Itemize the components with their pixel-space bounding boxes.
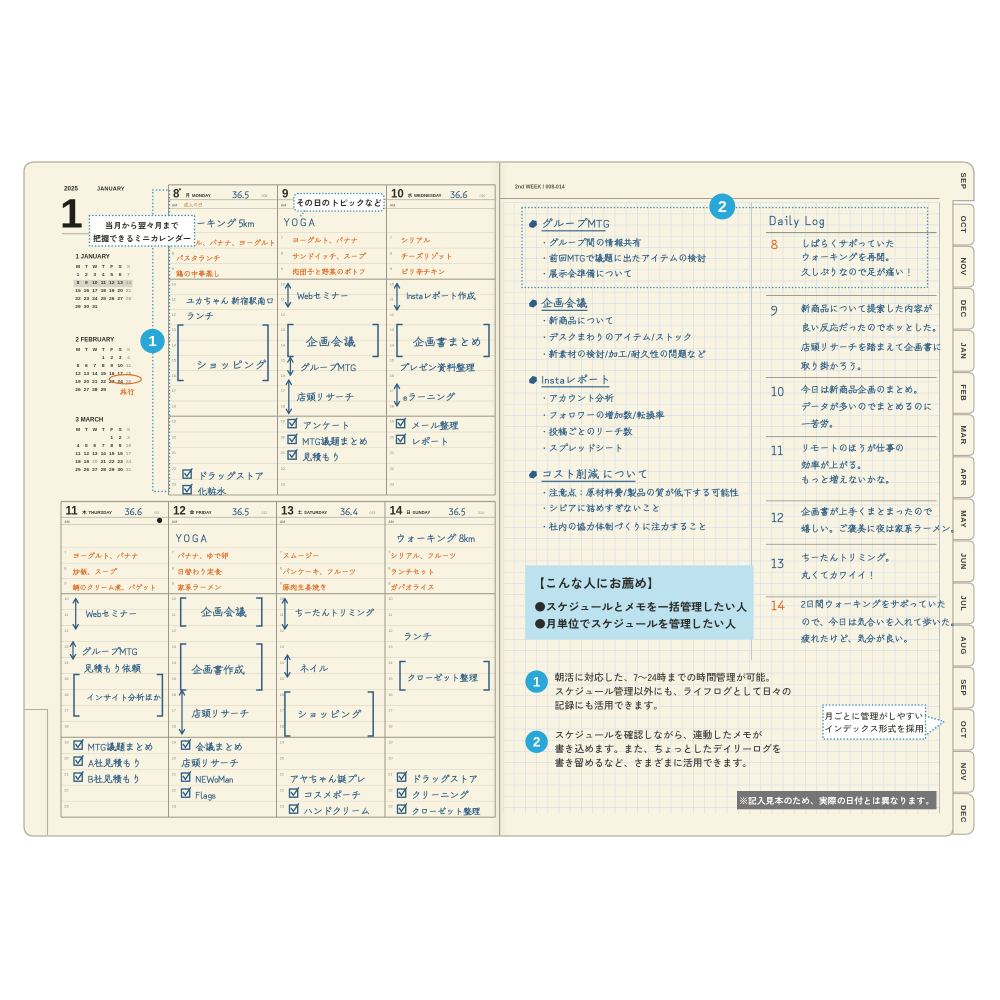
svg-text:23: 23: [84, 296, 90, 302]
svg-text:成人の日: 成人の日: [183, 203, 202, 209]
svg-text:9: 9: [172, 581, 174, 586]
svg-text:3 MARCH: 3 MARCH: [76, 417, 104, 424]
svg-text:W: W: [92, 347, 97, 353]
svg-text:7: 7: [64, 550, 66, 555]
svg-text:YOGA: YOGA: [175, 530, 209, 545]
svg-text:7: 7: [281, 235, 283, 240]
svg-text:T: T: [85, 427, 88, 433]
svg-text:企画書まとめ: 企画書まとめ: [412, 334, 482, 350]
svg-text:21: 21: [390, 450, 394, 455]
svg-text:18: 18: [280, 724, 284, 729]
svg-text:23: 23: [117, 459, 123, 465]
svg-text:29: 29: [109, 467, 115, 473]
svg-text:インサイト分析ほか: インサイト分析ほか: [86, 692, 161, 704]
svg-text:13: 13: [390, 327, 394, 332]
svg-text:014: 014: [478, 511, 484, 515]
svg-text:8: 8: [172, 566, 174, 571]
svg-text:31: 31: [126, 467, 132, 473]
svg-text:1: 1: [102, 355, 105, 361]
svg-text:SEP: SEP: [959, 679, 968, 696]
svg-text:AM: AM: [390, 203, 396, 207]
svg-text:7: 7: [390, 235, 392, 240]
svg-text:AM: AM: [64, 520, 70, 524]
svg-text:12: 12: [390, 312, 394, 317]
svg-text:スケジュール管理以外にも、ライフログとして日々の: スケジュール管理以外にも、ライフログとして日々の: [555, 684, 792, 698]
svg-text:21: 21: [172, 772, 176, 777]
svg-text:把握できるミニカレンダー: 把握できるミニカレンダー: [93, 232, 191, 244]
svg-text:グループMTG: グループMTG: [82, 644, 138, 658]
svg-text:アヤちゃん誕プレ: アヤちゃん誕プレ: [290, 772, 366, 786]
svg-text:4: 4: [127, 355, 130, 361]
svg-text:8: 8: [173, 189, 180, 201]
svg-text:26: 26: [84, 467, 90, 473]
svg-text:17: 17: [64, 708, 68, 713]
svg-text:ランチ: ランチ: [186, 308, 214, 322]
svg-text:27: 27: [84, 387, 90, 393]
svg-text:会議まとめ: 会議まとめ: [196, 740, 244, 754]
svg-text:25: 25: [101, 296, 107, 302]
svg-text:T: T: [85, 264, 88, 270]
svg-text:AM: AM: [172, 203, 178, 207]
svg-text:JUN: JUN: [959, 553, 968, 570]
svg-text:9: 9: [172, 266, 174, 271]
svg-text:丸くてカワイイ！: 丸くてカワイイ！: [801, 567, 876, 581]
svg-text:8: 8: [390, 250, 392, 255]
svg-text:・展示会準備について: ・展示会準備について: [540, 266, 632, 280]
svg-text:旅行: 旅行: [120, 388, 135, 398]
svg-text:Webセミナー: Webセミナー: [297, 289, 349, 302]
svg-text:15: 15: [172, 358, 176, 363]
svg-text:22: 22: [172, 466, 176, 471]
svg-text:T: T: [85, 347, 88, 353]
svg-text:7: 7: [172, 550, 174, 555]
svg-text:17: 17: [390, 388, 394, 393]
svg-text:16: 16: [172, 373, 176, 378]
svg-text:9: 9: [281, 266, 283, 271]
svg-text:3: 3: [127, 435, 130, 441]
svg-text:2 FEBRUARY: 2 FEBRUARY: [76, 337, 115, 344]
svg-text:11: 11: [280, 612, 284, 617]
svg-text:FEB: FEB: [959, 384, 968, 401]
svg-text:14: 14: [92, 371, 98, 377]
svg-text:13: 13: [172, 327, 176, 332]
svg-text:JUL: JUL: [959, 595, 968, 611]
svg-text:1: 1: [148, 333, 156, 350]
svg-text:11: 11: [771, 439, 783, 459]
svg-text:16: 16: [172, 692, 176, 697]
svg-text:企画会議: 企画会議: [541, 295, 588, 311]
svg-text:15: 15: [109, 451, 115, 457]
svg-text:MAY: MAY: [959, 510, 968, 528]
svg-text:AM: AM: [172, 520, 178, 524]
svg-text:ドラッグストア: ドラッグストア: [412, 772, 479, 786]
svg-text:クローゼット整理: クローゼット整理: [407, 671, 479, 684]
svg-text:17: 17: [92, 288, 98, 294]
svg-text:16: 16: [390, 373, 394, 378]
svg-text:15: 15: [64, 676, 68, 681]
svg-text:36.6: 36.6: [124, 504, 142, 518]
svg-text:DEC: DEC: [959, 300, 968, 318]
svg-text:鶏の中華蒸し: 鶏の中華蒸し: [176, 269, 220, 280]
svg-text:インデックス形式を採用: インデックス形式を採用: [824, 722, 923, 735]
svg-text:21: 21: [172, 450, 176, 455]
svg-text:JANUARY: JANUARY: [97, 187, 125, 193]
svg-text:WEDNESDAY: WEDNESDAY: [414, 193, 442, 198]
svg-text:・新商品について: ・新商品について: [540, 313, 614, 327]
svg-text:ショッピング: ショッピング: [196, 357, 267, 373]
svg-text:・投稿ごとのリーチ数: ・投稿ごとのリーチ数: [540, 424, 633, 438]
svg-text:4: 4: [102, 272, 105, 278]
svg-text:M: M: [76, 264, 80, 270]
svg-text:19: 19: [64, 740, 68, 745]
svg-text:22: 22: [109, 459, 115, 465]
svg-text:月: 月: [186, 192, 191, 199]
svg-text:NOV: NOV: [959, 257, 968, 276]
svg-text:1: 1: [60, 191, 83, 237]
svg-text:F: F: [110, 264, 113, 270]
svg-text:8: 8: [102, 363, 105, 369]
svg-text:5: 5: [110, 272, 113, 278]
svg-text:2: 2: [718, 199, 727, 216]
svg-text:クローゼット整理: クローゼット整理: [412, 806, 481, 818]
svg-text:メール整理: メール整理: [411, 418, 459, 432]
svg-text:・グループ間の情報共有: ・グループ間の情報共有: [540, 235, 642, 249]
svg-text:2: 2: [85, 272, 88, 278]
svg-text:ランチセット: ランチセット: [390, 567, 434, 578]
svg-text:T: T: [102, 264, 105, 270]
svg-text:9: 9: [390, 266, 392, 271]
svg-text:※記入見本のため、実際の日付とは異なります。: ※記入見本のため、実際の日付とは異なります。: [739, 794, 934, 807]
svg-text:19: 19: [172, 419, 176, 424]
svg-text:鯛のクリーム煮、バゲット: 鯛のクリーム煮、バゲット: [73, 583, 157, 593]
svg-text:010: 010: [480, 194, 486, 198]
svg-text:見積もり依頼: 見積もり依頼: [84, 661, 142, 675]
svg-text:JAN: JAN: [959, 342, 968, 359]
svg-text:36.5: 36.5: [232, 504, 249, 518]
svg-text:M: M: [76, 427, 80, 433]
svg-text:12: 12: [388, 628, 392, 633]
svg-text:17: 17: [280, 708, 284, 713]
svg-text:27: 27: [117, 296, 123, 302]
svg-text:16: 16: [84, 288, 90, 294]
svg-text:効率が上がる。: 効率が上がる。: [801, 458, 866, 472]
svg-text:13: 13: [92, 451, 98, 457]
svg-text:36.4: 36.4: [340, 504, 358, 518]
svg-text:22: 22: [101, 379, 107, 385]
svg-text:14: 14: [771, 594, 785, 614]
svg-text:ハンドクリーム: ハンドクリーム: [304, 804, 371, 818]
svg-text:良い反応だったのでホッとした。: 良い反応だったのでホッとした。: [801, 320, 941, 334]
svg-text:2nd WEEK / 008-014: 2nd WEEK / 008-014: [515, 185, 565, 191]
svg-text:22: 22: [172, 788, 176, 793]
svg-text:8: 8: [771, 233, 778, 253]
svg-text:アンケート: アンケート: [303, 418, 351, 432]
svg-text:36.5: 36.5: [232, 187, 249, 201]
svg-text:FRIDAY: FRIDAY: [196, 510, 212, 515]
svg-text:21: 21: [388, 772, 392, 777]
svg-text:19: 19: [84, 459, 90, 465]
svg-text:7: 7: [127, 272, 130, 278]
svg-text:15: 15: [281, 358, 285, 363]
svg-text:土: 土: [298, 509, 303, 516]
svg-text:18: 18: [390, 403, 394, 408]
svg-text:3: 3: [119, 355, 122, 361]
svg-text:3: 3: [93, 272, 96, 278]
svg-text:ので、今日は気合いを入れて歩いた。: ので、今日は気合いを入れて歩いた。: [801, 614, 959, 628]
svg-text:11: 11: [126, 363, 131, 369]
svg-text:22: 22: [390, 466, 394, 471]
svg-text:13: 13: [172, 644, 176, 649]
svg-text:13: 13: [64, 644, 68, 649]
svg-text:21: 21: [64, 772, 68, 777]
svg-text:9: 9: [85, 280, 88, 286]
svg-text:21: 21: [126, 288, 132, 294]
svg-text:13: 13: [84, 371, 90, 377]
svg-text:サンドイッチ、スープ: サンドイッチ、スープ: [292, 251, 366, 262]
svg-text:月ごとに管理がしやすい: 月ごとに管理がしやすい: [824, 710, 923, 723]
svg-text:M: M: [76, 347, 80, 353]
svg-text:金: 金: [189, 509, 195, 516]
svg-text:012: 012: [262, 511, 268, 515]
svg-text:10: 10: [117, 363, 123, 369]
svg-text:13: 13: [388, 644, 392, 649]
svg-text:Webセミナー: Webセミナー: [86, 607, 138, 620]
svg-text:19: 19: [390, 419, 394, 424]
svg-text:19: 19: [109, 288, 115, 294]
svg-text:しばらくサポっていた: しばらくサポっていた: [801, 236, 895, 250]
svg-text:28: 28: [101, 467, 107, 473]
svg-text:AUG: AUG: [959, 636, 968, 655]
svg-text:16: 16: [64, 692, 68, 697]
svg-text:チーズリゾット: チーズリゾット: [401, 251, 453, 262]
svg-text:18: 18: [172, 724, 176, 729]
svg-text:12: 12: [64, 628, 68, 633]
svg-text:013: 013: [370, 511, 376, 515]
svg-text:一苦労。: 一苦労。: [801, 416, 838, 430]
svg-text:12: 12: [280, 628, 284, 633]
svg-text:●スケジュールとメモを一括管理したい人: ●スケジュールとメモを一括管理したい人: [535, 599, 748, 615]
svg-text:12: 12: [173, 506, 186, 518]
svg-text:15: 15: [280, 676, 284, 681]
svg-text:18: 18: [126, 371, 132, 377]
svg-text:30: 30: [84, 304, 90, 310]
svg-text:APR: APR: [959, 468, 968, 486]
svg-text:書き留めるなど、さまざまに活用できます。: 書き留めるなど、さまざまに活用できます。: [555, 755, 753, 769]
svg-text:NOV: NOV: [959, 763, 968, 782]
svg-text:11: 11: [101, 280, 106, 286]
svg-text:12: 12: [109, 280, 115, 286]
svg-text:21: 21: [92, 379, 98, 385]
svg-text:当月から翌々月まで: 当月から翌々月まで: [105, 219, 179, 231]
svg-text:ランチ: ランチ: [403, 629, 432, 643]
svg-text:1 JANUARY: 1 JANUARY: [76, 254, 110, 261]
svg-text:13: 13: [281, 506, 294, 518]
svg-text:・前回MTGで議題に出たアイテムの検討: ・前回MTGで議題に出たアイテムの検討: [540, 250, 707, 264]
svg-text:18: 18: [281, 403, 285, 408]
svg-text:・社内の協力体制づくりに注力すること: ・社内の協力体制づくりに注力すること: [540, 519, 707, 533]
svg-text:23: 23: [281, 482, 285, 487]
svg-text:朝活に対応した、7～24時までの時間管理が可能。: 朝活に対応した、7～24時までの時間管理が可能。: [555, 670, 776, 684]
svg-text:・フォロワーの増加数/転換率: ・フォロワーの増加数/転換率: [540, 408, 665, 422]
svg-text:17: 17: [172, 708, 176, 713]
svg-text:2: 2: [110, 355, 113, 361]
svg-text:24: 24: [126, 459, 132, 465]
svg-text:22: 22: [281, 466, 285, 471]
svg-text:Daily Log: Daily Log: [769, 210, 826, 229]
svg-text:21: 21: [280, 772, 284, 777]
svg-text:店頭リサーチ: 店頭リサーチ: [297, 390, 355, 404]
svg-text:23: 23: [390, 482, 394, 487]
svg-text:5: 5: [77, 363, 80, 369]
svg-text:19: 19: [172, 740, 176, 745]
svg-text:書き込めます。また、ちょっとしたデイリーログを: 書き込めます。また、ちょっとしたデイリーログを: [555, 742, 782, 756]
svg-text:SUNDAY: SUNDAY: [413, 510, 431, 515]
svg-text:13: 13: [117, 280, 123, 286]
svg-text:2: 2: [119, 435, 122, 441]
svg-text:18: 18: [75, 459, 81, 465]
svg-text:17: 17: [126, 451, 132, 457]
svg-text:コスト削減 について: コスト削減 について: [542, 466, 649, 482]
svg-text:16: 16: [281, 373, 285, 378]
svg-text:MONDAY: MONDAY: [192, 193, 211, 198]
svg-text:eラーニング: eラーニング: [403, 390, 455, 404]
svg-text:15: 15: [101, 371, 107, 377]
svg-text:011: 011: [154, 511, 160, 515]
svg-text:ピリ辛チキン: ピリ辛チキン: [401, 267, 445, 278]
svg-text:コスメポーチ: コスメポーチ: [304, 788, 362, 802]
svg-text:スムージー: スムージー: [283, 551, 320, 562]
svg-text:16: 16: [117, 451, 123, 457]
svg-text:ウォーキングを再開。: ウォーキングを再開。: [801, 250, 894, 264]
svg-text:21: 21: [101, 459, 107, 465]
svg-text:16: 16: [388, 692, 392, 697]
svg-text:6: 6: [85, 363, 88, 369]
svg-text:1: 1: [110, 435, 113, 441]
svg-text:36.5: 36.5: [448, 504, 465, 518]
svg-text:14: 14: [101, 451, 107, 457]
svg-text:9: 9: [119, 443, 122, 449]
svg-text:17: 17: [281, 388, 285, 393]
svg-text:Instaレポート: Instaレポート: [542, 371, 611, 387]
svg-text:ヨーグルト、バナナ: ヨーグルト、バナナ: [292, 235, 358, 246]
svg-text:28: 28: [92, 387, 98, 393]
svg-text:17: 17: [117, 371, 123, 377]
svg-text:008: 008: [262, 194, 268, 198]
svg-text:9: 9: [64, 581, 66, 586]
svg-text:化粧水: 化粧水: [198, 484, 227, 498]
svg-text:7: 7: [93, 363, 96, 369]
svg-text:T: T: [102, 347, 105, 353]
svg-text:12: 12: [172, 628, 176, 633]
svg-text:8: 8: [172, 250, 174, 255]
svg-text:10: 10: [126, 443, 132, 449]
svg-text:グループMTG: グループMTG: [300, 360, 356, 374]
svg-text:2: 2: [533, 735, 541, 750]
svg-text:23: 23: [172, 482, 176, 487]
svg-text:ちーたんトリミング: ちーたんトリミング: [295, 606, 374, 619]
svg-text:シリアル: シリアル: [401, 235, 431, 246]
svg-text:プレゼン資料整理: プレゼン資料整理: [399, 360, 476, 374]
svg-text:15: 15: [75, 288, 81, 294]
svg-text:26: 26: [75, 387, 81, 393]
svg-text:NEWoMan: NEWoMan: [196, 772, 234, 786]
svg-text:31: 31: [92, 304, 98, 310]
svg-text:肉団子と野菜のポトフ: 肉団子と野菜のポトフ: [292, 267, 366, 278]
svg-text:家系ラーメン: 家系ラーメン: [177, 582, 221, 593]
svg-text:11: 11: [75, 451, 80, 457]
svg-text:23: 23: [388, 804, 392, 809]
svg-text:疲れたけど、気分が良い。: 疲れたけど、気分が良い。: [801, 631, 912, 645]
svg-text:8: 8: [110, 443, 113, 449]
svg-text:データが多いのでまとめるのに: データが多いのでまとめるのに: [801, 399, 932, 413]
svg-text:今日は新商品企画のまとめ。: 今日は新商品企画のまとめ。: [801, 382, 922, 396]
svg-text:8: 8: [77, 280, 80, 286]
svg-text:T: T: [102, 427, 105, 433]
svg-text:ショッピング: ショッピング: [297, 706, 362, 721]
svg-text:・アカウント分析: ・アカウント分析: [540, 391, 615, 405]
svg-text:・デスクまわりのアイテム/ストック: ・デスクまわりのアイテム/ストック: [540, 330, 692, 344]
svg-text:新商品について提案した内容が: 新商品について提案した内容が: [800, 301, 933, 315]
svg-text:23: 23: [64, 804, 68, 809]
svg-text:Flags: Flags: [196, 788, 216, 802]
svg-text:Instaレポート作成: Instaレポート作成: [406, 289, 476, 302]
svg-text:SEP: SEP: [959, 173, 968, 190]
svg-text:企画書が上手くまとまったので: 企画書が上手くまとまったので: [800, 504, 933, 518]
svg-text:11: 11: [64, 612, 68, 617]
svg-text:W: W: [92, 427, 97, 433]
svg-text:・注意点：原材料費/製品の質が低下する可能性: ・注意点：原材料費/製品の質が低下する可能性: [540, 485, 739, 499]
svg-text:嬉しい。ご褒美に夜は家系ラーメン。: 嬉しい。ご褒美に夜は家系ラーメン。: [800, 521, 959, 535]
svg-text:ガパオライス: ガパオライス: [390, 582, 434, 593]
svg-text:19: 19: [280, 740, 284, 745]
svg-text:10: 10: [771, 380, 784, 400]
svg-text:24: 24: [92, 296, 98, 302]
svg-text:11: 11: [281, 297, 285, 302]
svg-text:12: 12: [75, 371, 81, 377]
svg-text:もっと増えないかな。: もっと増えないかな。: [801, 472, 894, 486]
svg-text:19: 19: [388, 740, 392, 745]
svg-text:パンケーキ、フルーツ: パンケーキ、フルーツ: [283, 567, 357, 578]
svg-text:18: 18: [172, 403, 176, 408]
svg-text:ウォーキング 8km: ウォーキング 8km: [396, 530, 475, 545]
svg-text:6: 6: [93, 443, 96, 449]
svg-text:6: 6: [119, 272, 122, 278]
svg-text:11: 11: [66, 506, 79, 518]
svg-text:11: 11: [388, 612, 392, 617]
svg-text:DEC: DEC: [959, 805, 968, 823]
svg-text:・シビアに詰めすぎないこと: ・シビアに詰めすぎないこと: [540, 500, 660, 514]
svg-text:22: 22: [75, 296, 81, 302]
svg-text:ユカちゃん 新宿駅南口: ユカちゃん 新宿駅南口: [186, 295, 274, 307]
svg-text:見積もり: 見積もり: [303, 450, 341, 464]
svg-text:18: 18: [388, 724, 392, 729]
svg-text:A社見積もり: A社見積もり: [88, 756, 142, 770]
svg-text:8: 8: [64, 566, 66, 571]
svg-text:OCT: OCT: [959, 216, 968, 234]
svg-text:YOGA: YOGA: [283, 214, 317, 229]
svg-text:23: 23: [172, 804, 176, 809]
svg-text:30: 30: [117, 467, 123, 473]
svg-text:20: 20: [84, 379, 90, 385]
svg-text:29: 29: [75, 304, 81, 310]
svg-text:AM: AM: [388, 520, 394, 524]
svg-text:F: F: [110, 427, 113, 433]
svg-text:クリーニング: クリーニング: [412, 788, 470, 802]
svg-text:20: 20: [92, 459, 98, 465]
svg-text:企画会議: 企画会議: [305, 334, 356, 350]
svg-text:AM: AM: [280, 520, 286, 524]
svg-text:29: 29: [101, 387, 107, 393]
